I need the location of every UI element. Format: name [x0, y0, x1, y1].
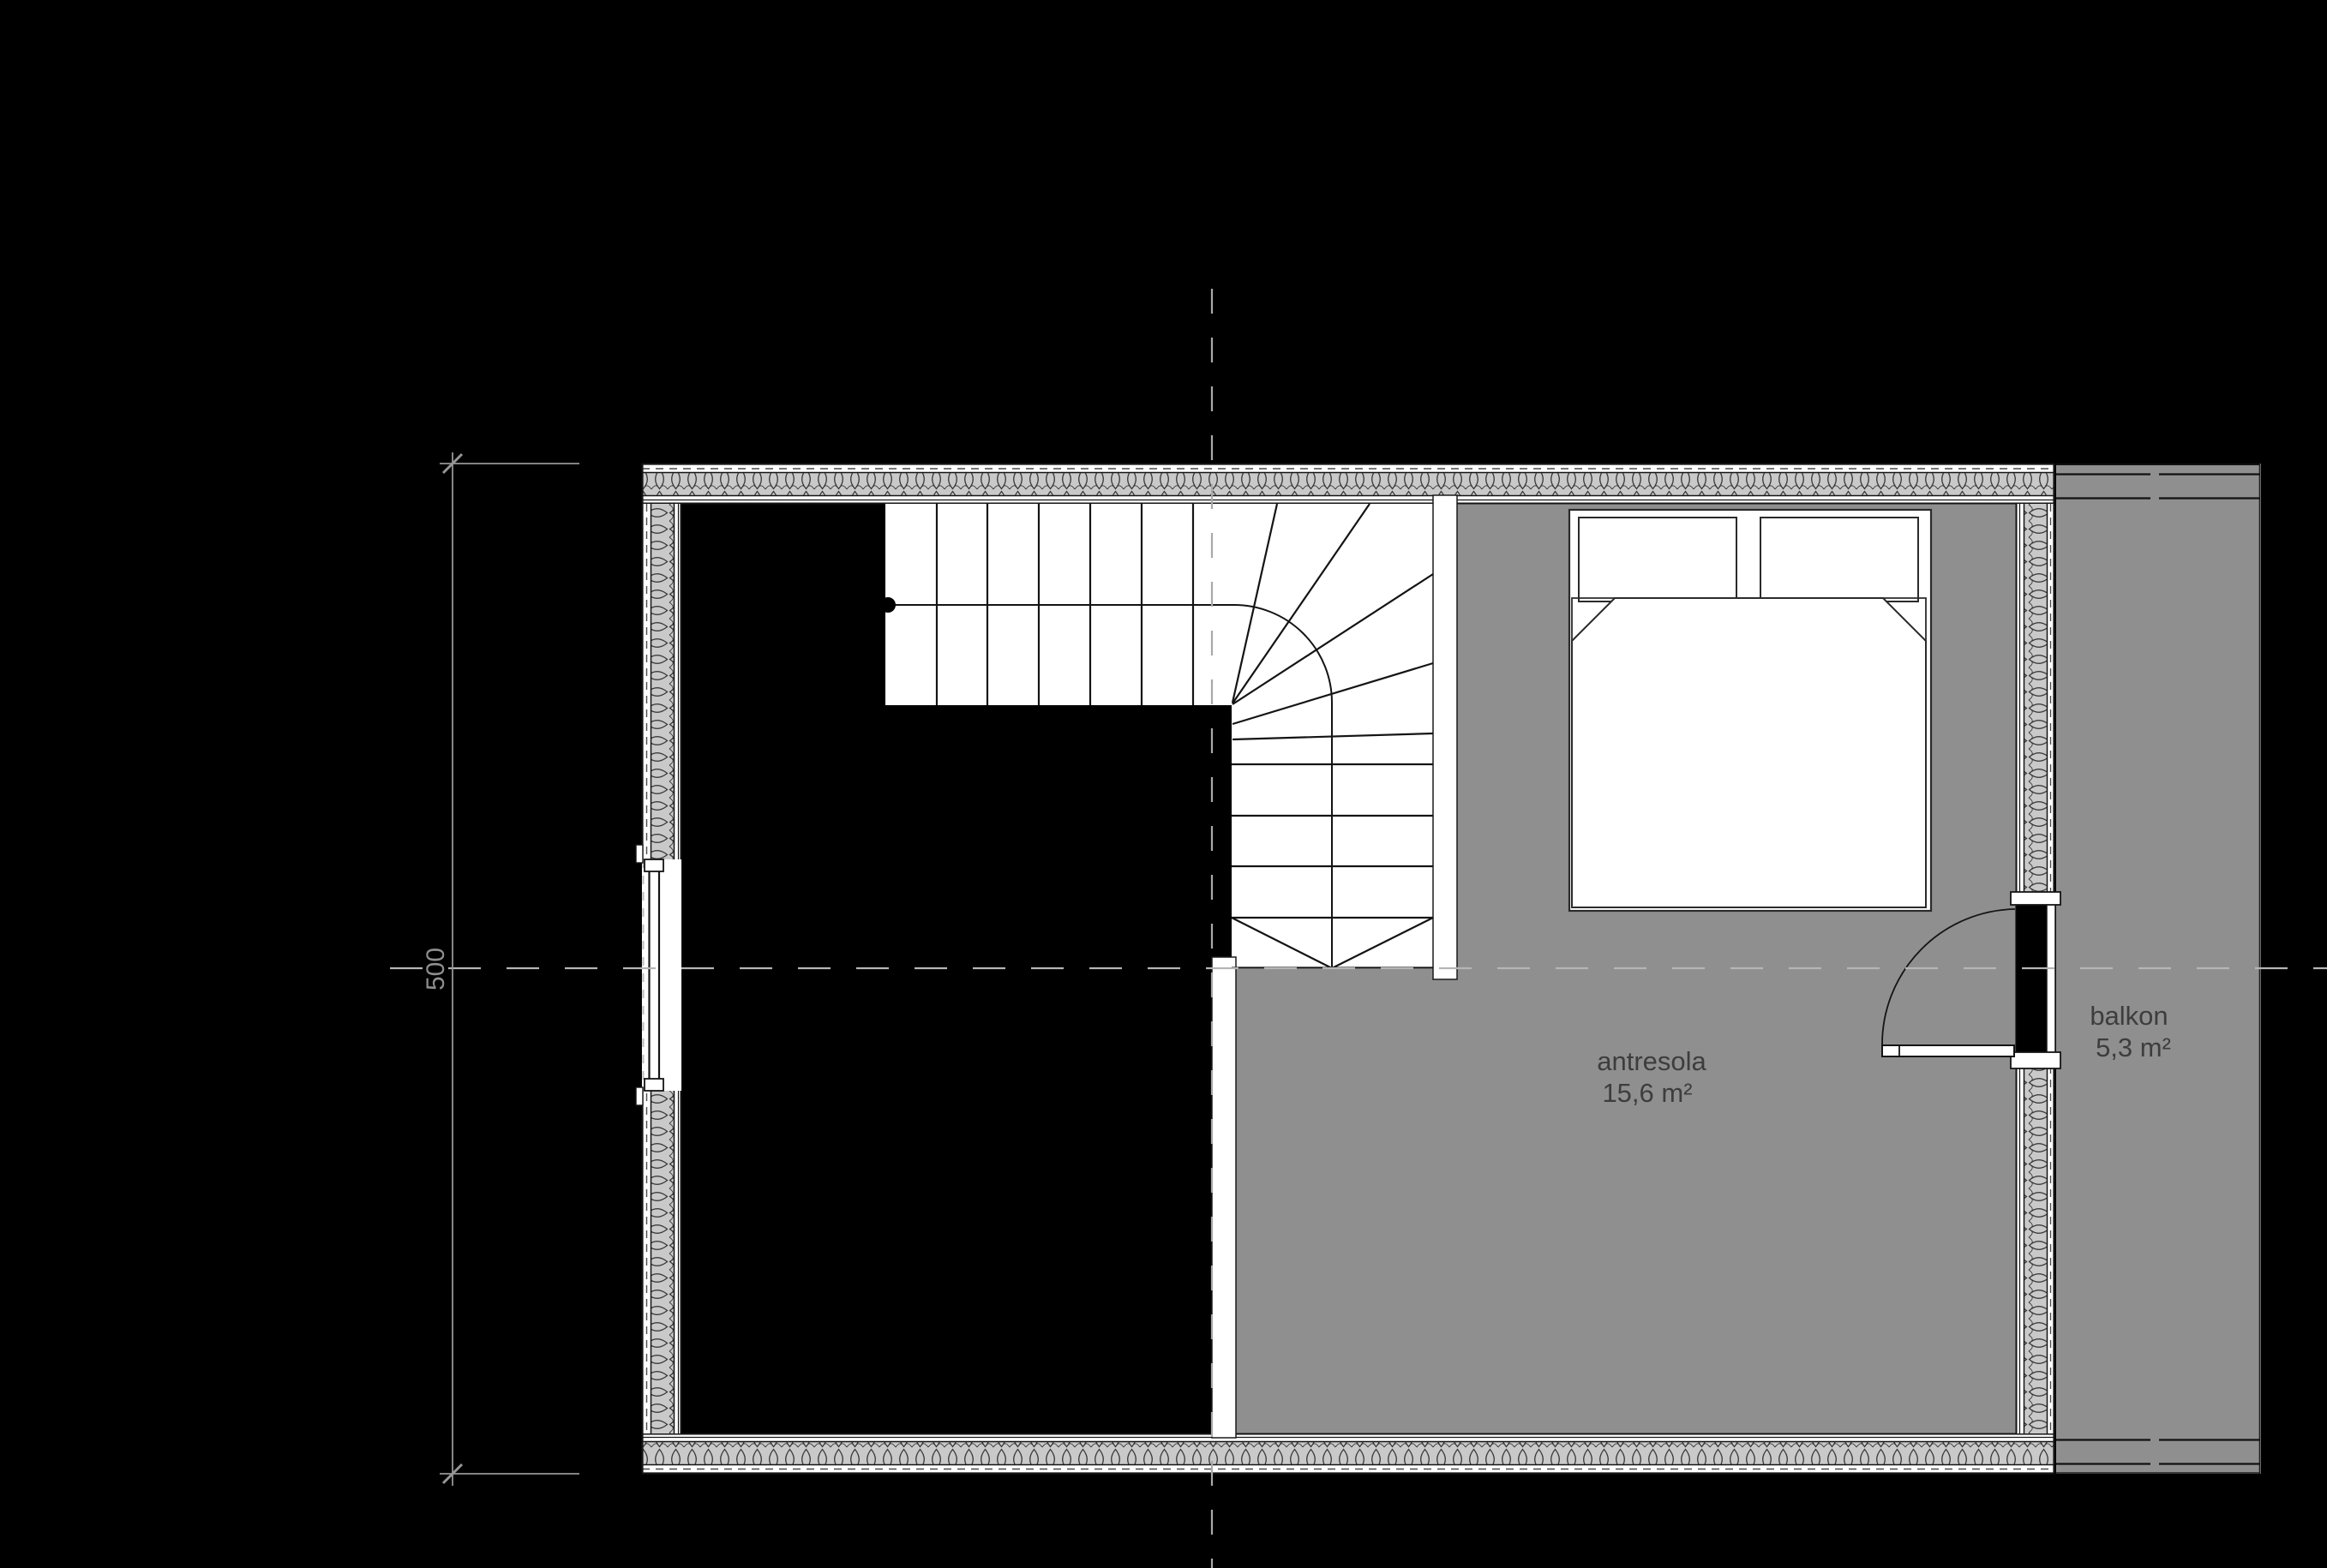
- left-window: [636, 845, 681, 1105]
- walking-line-start-dot: [880, 597, 896, 613]
- stair-stub-wall: [1212, 957, 1236, 1438]
- room-label-balkon: balkon: [2090, 1001, 2168, 1031]
- pillow-left: [1579, 518, 1736, 601]
- antresola-floor-lower: [1236, 969, 1457, 1433]
- window-jamb-bottom: [645, 1079, 663, 1091]
- window-exterior-tab: [636, 1087, 643, 1105]
- duvet: [1572, 598, 1926, 907]
- wall-bottom: [642, 1433, 2054, 1474]
- stair-side-wall: [1433, 495, 1457, 979]
- bed: [1569, 510, 1931, 911]
- window-jamb-top: [645, 859, 663, 871]
- room-area-balkon: 5,3 m²: [2096, 1032, 2171, 1062]
- window-exterior-tab: [636, 845, 643, 863]
- dimension-label: 500: [422, 948, 450, 990]
- window-opening: [642, 859, 681, 1091]
- room-label-antresola: antresola: [1597, 1046, 1706, 1076]
- door-threshold: [2047, 901, 2055, 1058]
- door-jamb-top: [2011, 892, 2060, 905]
- pillow-right: [1760, 518, 1918, 601]
- wall-top: [642, 464, 2054, 504]
- door-opening: [2016, 902, 2047, 1056]
- door-leaf: [1882, 1045, 2014, 1056]
- floor-plan-page: 500 antresola 15,6 m² balkon 5,3 m²: [0, 0, 2327, 1568]
- door-jamb-bottom: [2011, 1052, 2060, 1068]
- floor-plan: 500 antresola 15,6 m² balkon 5,3 m²: [0, 0, 2327, 1568]
- room-area-antresola: 15,6 m²: [1602, 1078, 1692, 1108]
